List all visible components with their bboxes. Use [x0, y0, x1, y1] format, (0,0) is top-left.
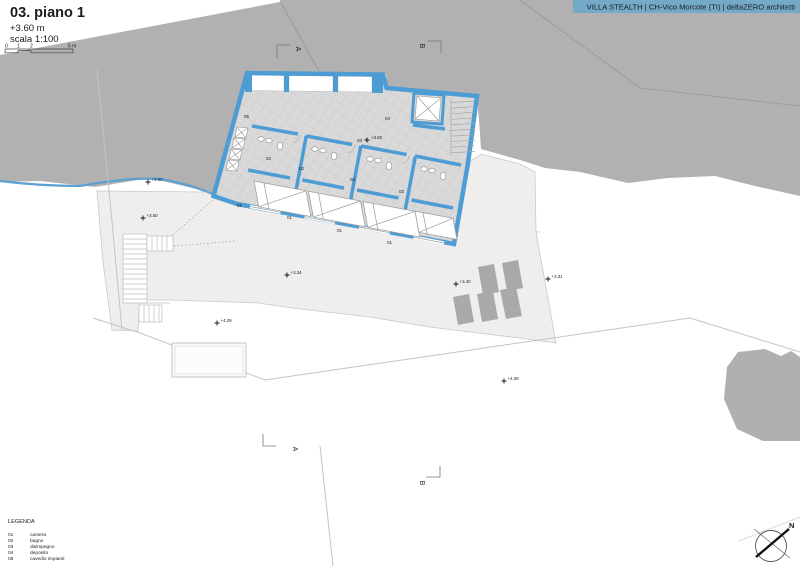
svg-text:+3.34: +3.34: [291, 270, 303, 275]
scale-tick-1: 1: [17, 44, 20, 50]
header-banner: VILLA STEALTH | CH-Vico Morcote (TI) | d…: [573, 0, 800, 13]
level-label: +3.60 m: [10, 23, 45, 34]
top-band-openings: [251, 75, 372, 92]
project-title: VILLA STEALTH | CH-Vico Morcote (TI) | d…: [587, 3, 796, 12]
svg-text:+4.29: +4.29: [508, 376, 520, 381]
room-label-disimpegno: 03: [357, 138, 363, 143]
svg-text:+3.50: +3.50: [152, 177, 164, 182]
legend-item-code-4: 04: [8, 550, 14, 556]
interior-elevation-value: +3.60: [371, 135, 383, 140]
scale-tick-0: 0: [5, 44, 8, 50]
legend: LEGENDA 01 camera 02 bagno 03 disimpegno…: [8, 519, 64, 562]
existing-structure-mass: [724, 349, 800, 441]
room-label-bagno-3: 02: [350, 177, 356, 182]
elevation-marker-5: +3.31: [546, 274, 564, 282]
room-label-bagno-4: 02: [399, 189, 405, 194]
room-label-cavedio: 05: [244, 114, 250, 119]
legend-item-label-4: deposito: [30, 550, 48, 556]
legend-item-label-3: disimpegno: [30, 544, 55, 550]
north-label: N: [789, 521, 794, 530]
legend-heading: LEGENDA: [8, 519, 35, 525]
room-label-camera-1: 01: [237, 203, 243, 208]
legend-item-label-1: camera: [30, 532, 46, 538]
legend-item-code-3: 03: [8, 544, 14, 550]
svg-text:+3.31: +3.31: [552, 274, 564, 279]
room-label-camera-4: 01: [387, 240, 393, 245]
svg-text:+3.50: +3.50: [147, 213, 159, 218]
legend-item-label-2: bagno: [30, 538, 44, 544]
pool-basin: [172, 343, 246, 377]
svg-text:+4.29: +4.29: [221, 318, 233, 323]
page-title: 03. piano 1: [10, 5, 85, 21]
elevation-marker-7: +4.29: [502, 376, 520, 384]
skylight-shaft: [412, 93, 444, 124]
room-label-camera-3: 01: [337, 228, 343, 233]
north-compass: N: [739, 517, 800, 562]
title-block: 03. piano 1 +3.60 m scala 1:100 0 1 2 5 …: [5, 5, 85, 53]
site-plan-canvas: 05 04 03 02 02 02 02 01 01 01 01 +3.60 +…: [0, 0, 800, 566]
legend-item-label-5: cavedio impianti: [30, 556, 64, 562]
section-marker-b-bottom: B: [418, 481, 425, 486]
scale-tick-2: 2: [30, 44, 33, 50]
svg-text:+3.40: +3.40: [460, 279, 472, 284]
room-label-bagno-1: 02: [266, 156, 272, 161]
section-marker-a-bottom: A: [291, 447, 298, 452]
legend-item-code-2: 02: [8, 538, 14, 544]
room-label-deposito: 04: [385, 116, 391, 121]
legend-item-code-5: 05: [8, 556, 14, 562]
legend-item-code-1: 01: [8, 532, 14, 538]
section-marker-a-top: A: [294, 47, 301, 52]
scale-tick-5m: 5 m: [68, 44, 76, 50]
room-label-camera-2: 01: [287, 215, 293, 220]
elevation-marker-6: +4.29: [215, 318, 233, 326]
section-marker-b-top: B: [418, 44, 425, 49]
room-label-bagno-2: 02: [299, 166, 305, 171]
boundary-line-vertical: [320, 446, 333, 566]
